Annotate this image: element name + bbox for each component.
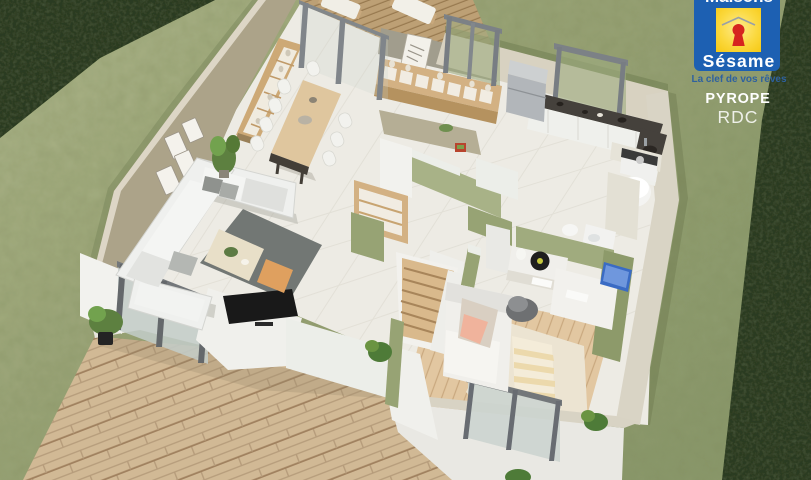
svg-text:PYROPE: PYROPE <box>705 91 770 107</box>
svg-text:RDC: RDC <box>718 107 759 127</box>
svg-text:Sésame: Sésame <box>703 51 776 71</box>
svg-text:Maisons: Maisons <box>705 0 773 6</box>
svg-text:La clef de vos rêves: La clef de vos rêves <box>691 74 786 85</box>
